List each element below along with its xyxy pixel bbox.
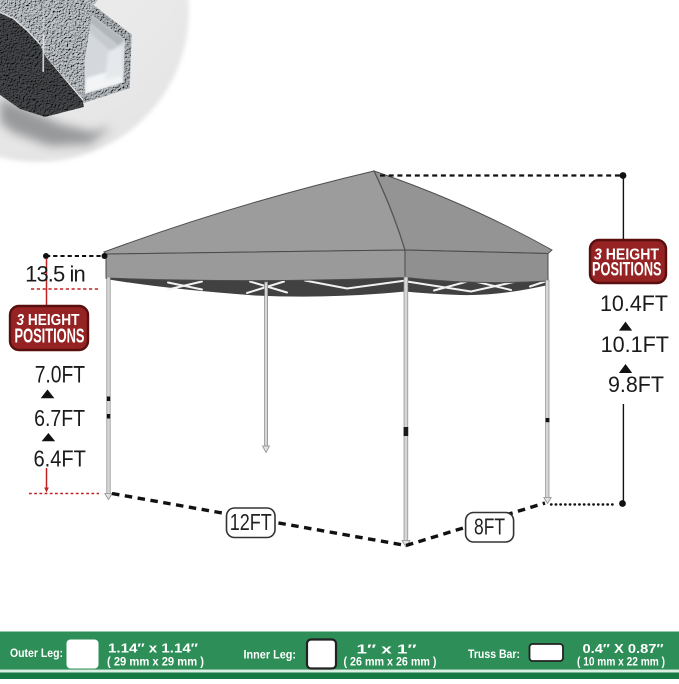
svg-text:6.7FT: 6.7FT bbox=[34, 405, 85, 431]
svg-text:10.4FT: 10.4FT bbox=[600, 291, 668, 316]
svg-text:( 29 mm x 29 mm ): ( 29 mm x 29 mm ) bbox=[107, 657, 204, 669]
svg-text:Inner Leg:: Inner Leg: bbox=[244, 650, 297, 662]
svg-text:POSITIONS: POSITIONS bbox=[592, 259, 662, 281]
svg-text:1″ x 1″: 1″ x 1″ bbox=[357, 643, 417, 657]
svg-text:Outer Leg:: Outer Leg: bbox=[10, 648, 63, 660]
svg-text:10.1FT: 10.1FT bbox=[601, 332, 669, 357]
svg-text:7.0FT: 7.0FT bbox=[35, 362, 86, 389]
svg-text:Truss Bar:: Truss Bar: bbox=[468, 649, 520, 661]
svg-text:0.4″ X 0.87″: 0.4″ X 0.87″ bbox=[583, 642, 664, 656]
svg-text:POSITIONS: POSITIONS bbox=[15, 326, 85, 348]
svg-text:8FT: 8FT bbox=[474, 514, 505, 540]
svg-text:( 10 mm x 22 mm ): ( 10 mm x 22 mm ) bbox=[577, 657, 665, 669]
svg-text:( 26 mm x 26 mm ): ( 26 mm x 26 mm ) bbox=[344, 657, 437, 669]
svg-text:6.4FT: 6.4FT bbox=[33, 446, 86, 472]
svg-text:1.14″ x 1.14″: 1.14″ x 1.14″ bbox=[108, 642, 198, 656]
svg-text:9.8FT: 9.8FT bbox=[608, 372, 664, 397]
svg-text:12FT: 12FT bbox=[230, 509, 272, 535]
svg-text:13.5 in: 13.5 in bbox=[25, 262, 85, 287]
